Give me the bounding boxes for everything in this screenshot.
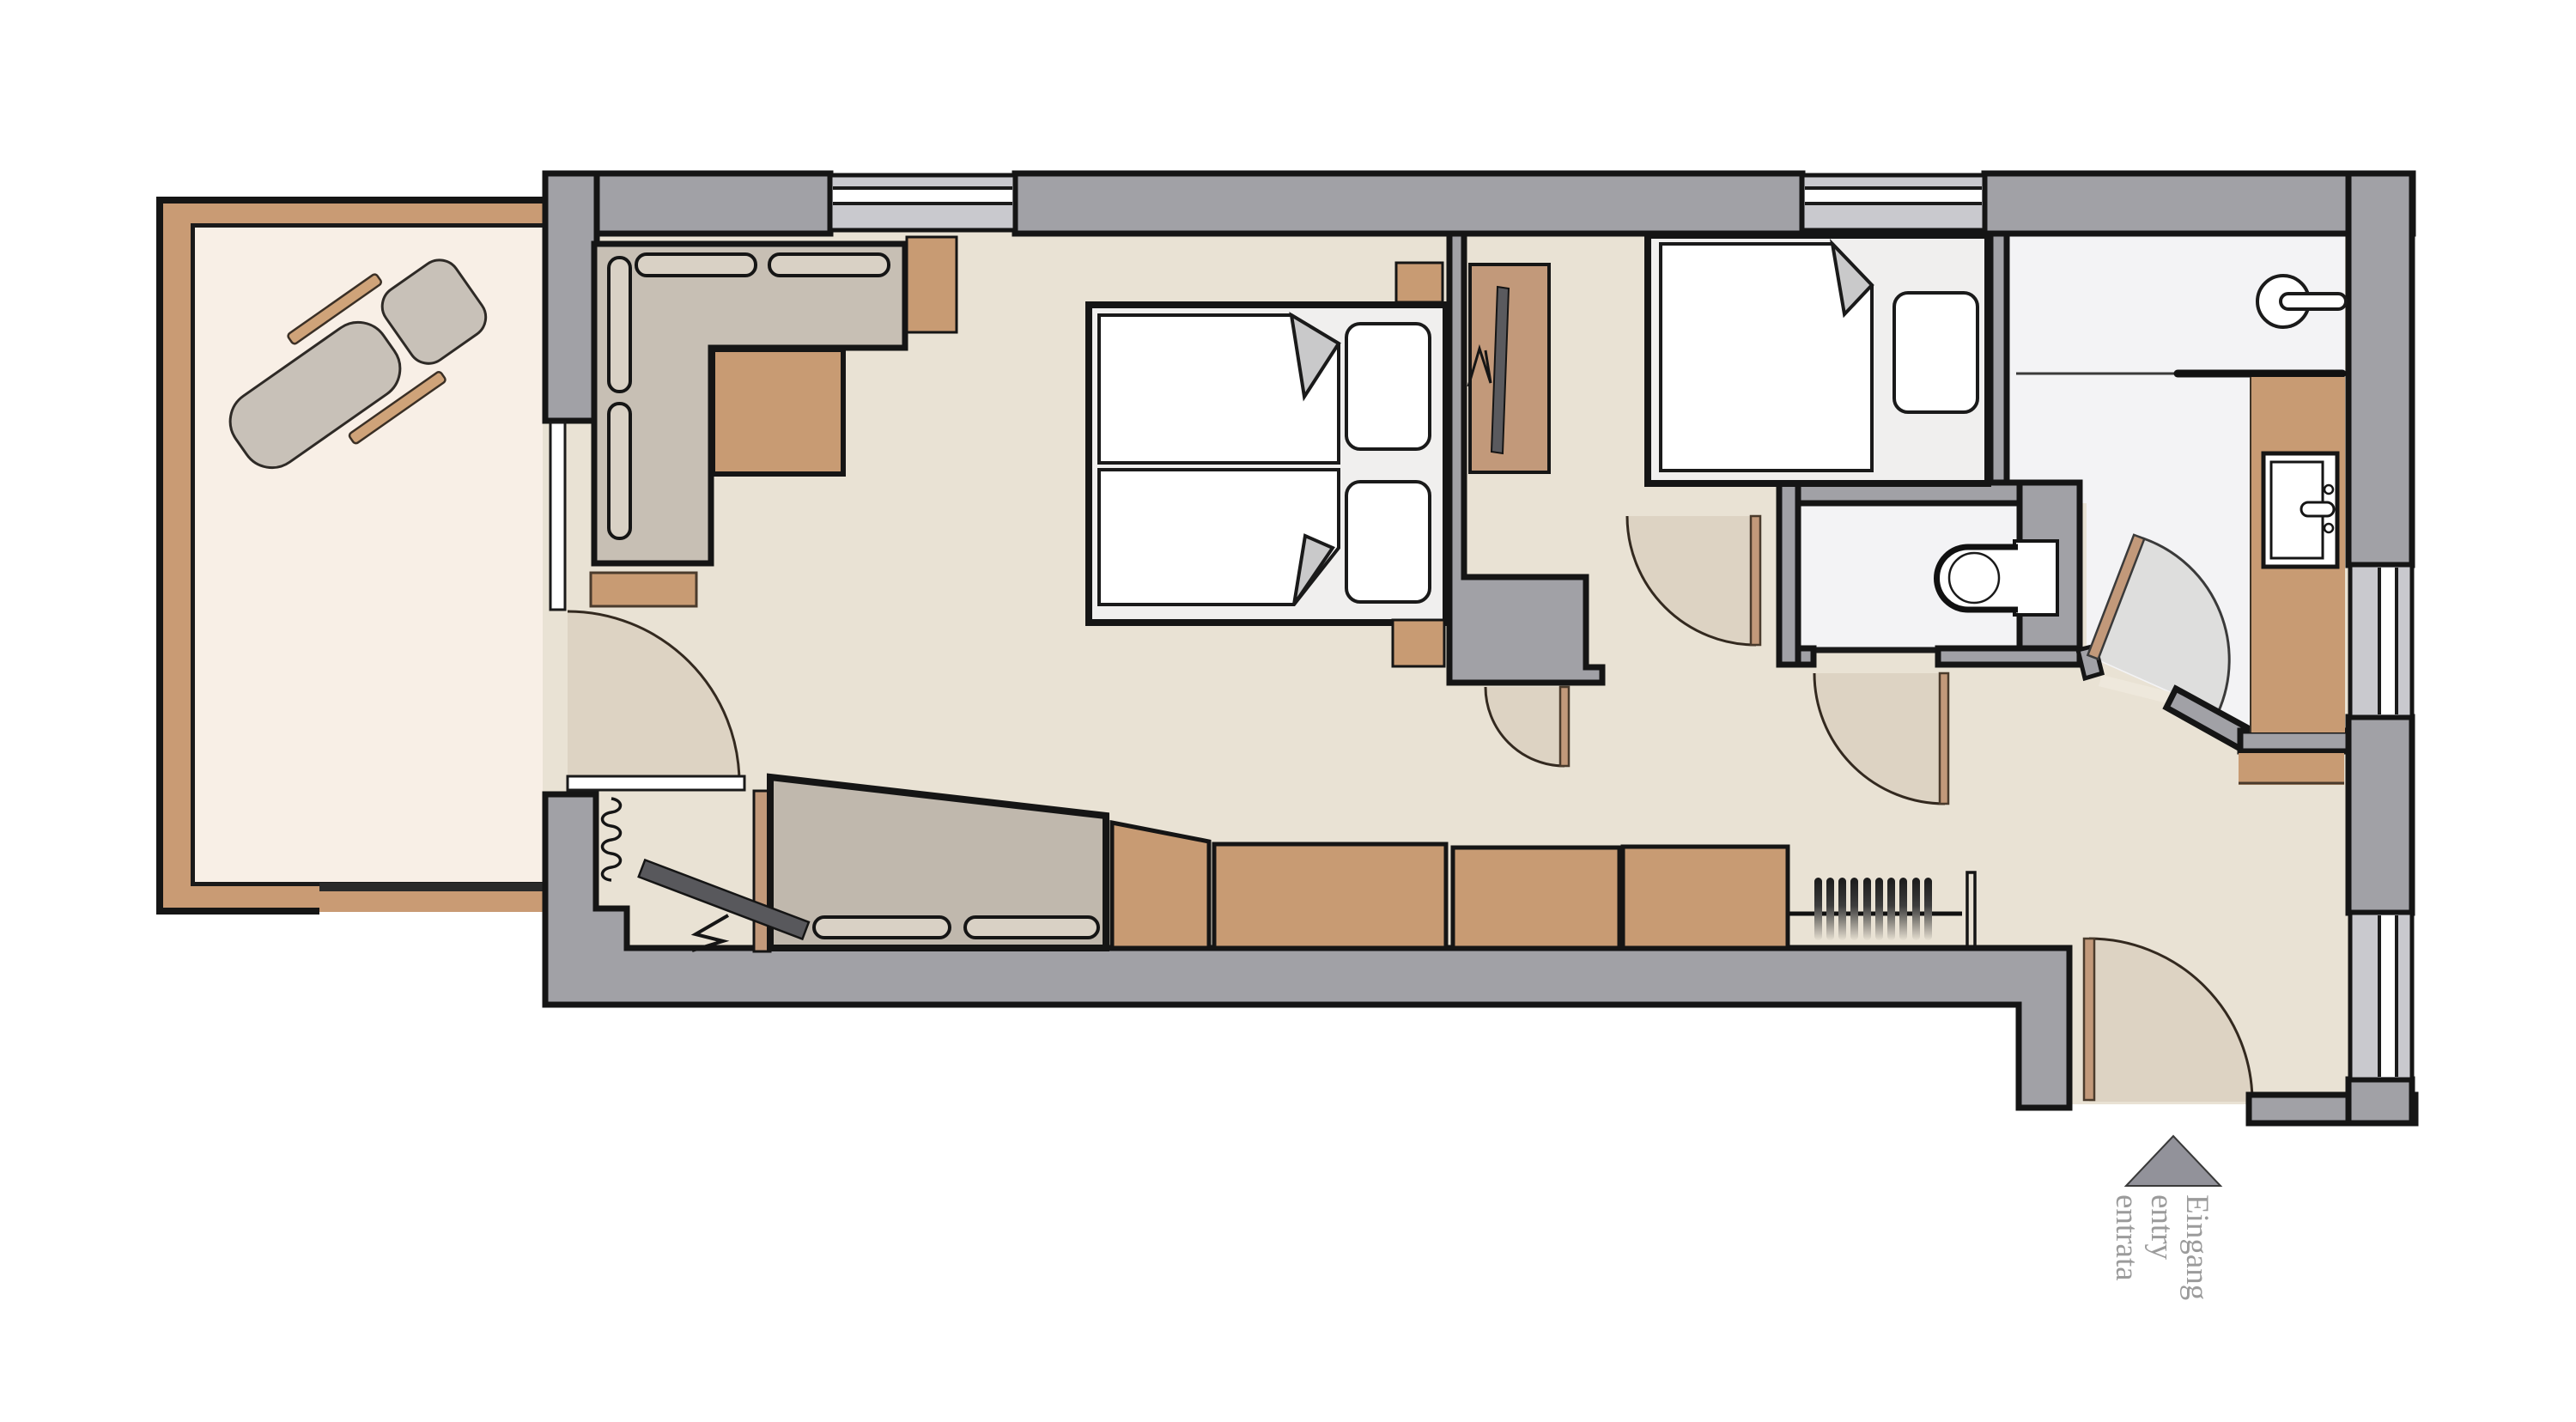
svg-text:Eingang: Eingang — [2179, 1194, 2215, 1300]
svg-text:entry: entry — [2144, 1194, 2179, 1261]
svg-text:entrata: entrata — [2109, 1194, 2144, 1281]
